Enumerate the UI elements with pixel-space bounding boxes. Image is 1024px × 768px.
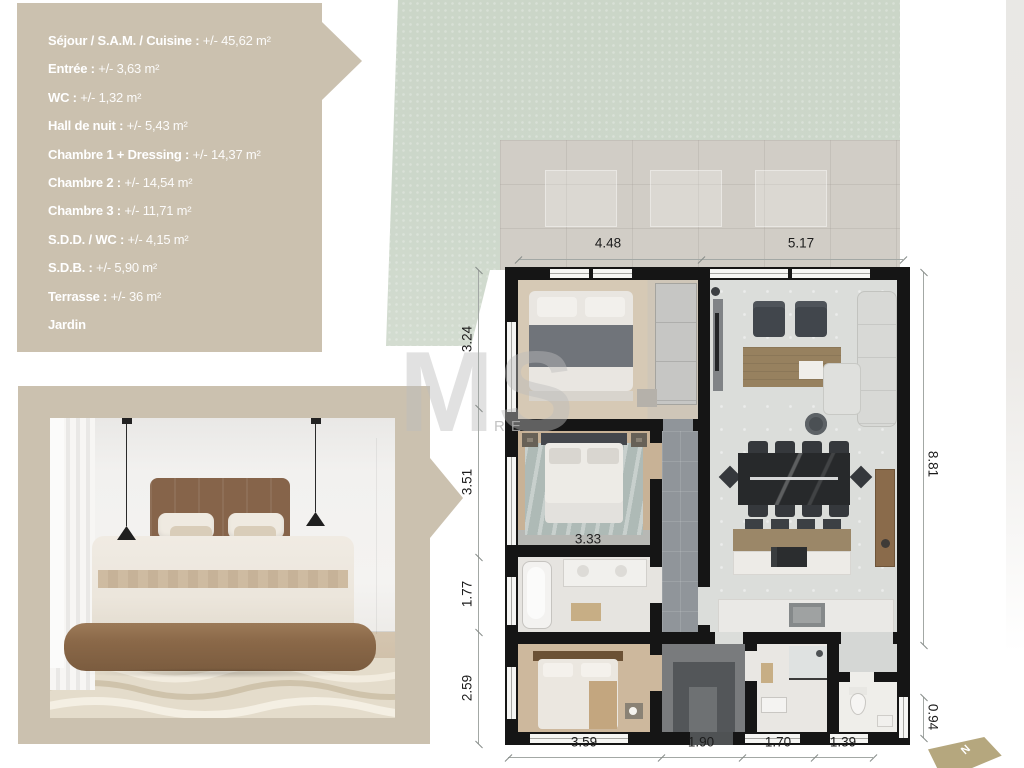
north-label: N [959,743,973,757]
dining-chair [775,441,795,453]
dimension-tick [811,754,819,762]
table-book [799,361,823,379]
floorplan-page: Séjour / S.A.M. / Cuisine : +/- 45,62 m²… [0,0,1024,768]
window-light [50,418,64,668]
nightstand [522,433,538,447]
bar-stool [745,519,763,529]
dimension-tick [475,554,483,562]
floor-plan [505,267,910,745]
terrace-area [500,140,900,270]
pendant-lamp-icon [306,512,325,526]
window [507,322,516,412]
pendant-cord [126,418,127,526]
bed-blanket [529,325,633,367]
legend-item-value: +/- 45,62 m² [203,33,271,48]
legend-box: Séjour / S.A.M. / Cuisine : +/- 45,62 m²… [17,3,322,352]
bed-leather-base [64,623,376,671]
bed-bench [529,391,633,401]
legend-item-label: Entrée : [48,61,98,76]
hall-de-nuit [662,431,698,632]
ceiling-mount [122,418,132,424]
dining-chair [829,441,849,453]
photo-pointer-icon [430,458,463,538]
door-opening [650,567,662,603]
dimension-tick [505,754,513,762]
legend-item-value: +/- 5,43 m² [127,118,188,133]
dim-label-left: 3.51 [460,469,475,495]
ceiling-mount [311,418,321,424]
legend-item-label: Jardin [48,317,86,332]
dim-label-interior: 3.33 [575,532,601,547]
door-opening [698,587,710,625]
legend-item-value: +/- 5,90 m² [96,260,157,275]
window [507,667,516,719]
vanity [563,559,647,587]
pillow [585,297,625,317]
sink-icon [761,697,787,713]
dim-label-right: 8.81 [926,451,941,477]
legend-item-value: +/- 3,63 m² [98,61,159,76]
bathtub-basin [527,567,545,619]
terrace-paver [755,170,827,227]
legend-item-value: +/- 11,71 m² [124,203,191,218]
wall-interior [698,280,710,632]
dimension-tick [739,754,747,762]
window-mullion [788,268,792,279]
bedroom-photo [50,418,395,718]
window-mullion [589,268,593,279]
legend-item-label: Chambre 3 : [48,203,124,218]
room-corner-line [376,438,377,634]
dim-label-left: 2.59 [460,675,475,701]
legend-item: Chambre 3 : +/- 11,71 m² [48,197,312,225]
lamp-icon [629,707,637,715]
hall-bas [839,644,897,672]
legend-item: Hall de nuit : +/- 5,43 m² [48,112,312,140]
pillow [587,448,619,464]
legend-item-label: Chambre 2 : [48,175,124,190]
dining-chair [748,441,768,453]
legend-item-label: WC : [48,90,80,105]
towel [761,663,773,683]
shower-head-icon [816,650,823,657]
dining-chair [802,441,822,453]
dimension-line [923,697,924,738]
dimension-tick [658,754,666,762]
bath-mat [571,603,601,621]
sink-icon [615,565,627,577]
door-opening [745,651,757,681]
dimension-tick [475,405,483,413]
sink-icon [577,565,589,577]
dining-chair [775,505,795,517]
entry-closet-notch [689,687,717,732]
side-table [805,413,827,435]
legend-item-label: Terrasse : [48,289,111,304]
wall-right [897,267,910,745]
dimension-tick [920,269,928,277]
pillow [549,448,581,464]
door-opening [663,419,693,431]
nightstand [631,433,647,447]
dimension-line [508,757,873,758]
legend-item: S.D.B. : +/- 5,90 m² [48,254,312,282]
window [530,734,628,743]
plant-icon [711,287,720,296]
legend-item-label: Hall de nuit : [48,118,127,133]
dimension-line [478,270,479,744]
legend-item: WC : +/- 1,32 m² [48,84,312,112]
window [507,457,516,545]
bed-runner [98,570,348,588]
nightstand [637,389,657,407]
pendant-lamp-icon [117,526,136,540]
legend-item-value: +/- 14,54 m² [124,175,192,190]
door-opening [650,655,662,691]
wall-interior [827,644,839,732]
dim-label-left: 1.77 [460,581,475,607]
window [830,734,868,743]
dimension-tick [920,735,928,743]
bar-stool [797,519,815,529]
wall-interior [518,545,650,557]
legend-item-value: +/- 1,32 m² [80,90,141,105]
door-opening [850,672,874,682]
window [899,697,908,738]
dimension-tick [475,741,483,749]
pillow [537,297,577,317]
armchair [753,301,785,337]
page-edge-shading [1006,0,1024,768]
dining-chair [748,505,768,517]
legend-item-value: +/- 14,37 m² [193,147,261,162]
terrace-paver [545,170,617,227]
sink-icon [877,715,893,727]
sink-icon [789,603,825,627]
legend-item: Entrée : +/- 3,63 m² [48,55,312,83]
pendant-cord [315,418,316,512]
bed-throw [589,681,617,729]
sofa-chaise [823,363,861,415]
door-opening [715,632,743,644]
terrace-paver [650,170,722,227]
legend-item-value: +/- 4,15 m² [128,232,189,247]
entry-door-recess [690,732,733,745]
dining-chair [829,505,849,517]
bed-shadow [80,668,360,678]
dimension-tick [920,642,928,650]
door-opening [650,443,662,479]
cooktop-icon [771,547,807,567]
pillow [543,663,573,677]
bar-stool [823,519,841,529]
door-opening [841,632,893,644]
pillow [581,663,611,677]
dimension-tick [870,754,878,762]
legend-item-value: +/- 36 m² [111,289,162,304]
north-arrow-icon: N [928,737,1004,768]
dimension-tick [900,256,908,264]
wardrobe [655,283,697,405]
window [745,734,800,743]
legend-item-label: Chambre 1 + Dressing : [48,147,193,162]
tall-cabinet [875,469,895,567]
legend-item: Jardin [48,311,312,339]
legend-item: Chambre 1 + Dressing : +/- 14,37 m² [48,141,312,169]
armchair [795,301,827,337]
dimension-line [923,272,924,645]
legend-item: Séjour / S.A.M. / Cuisine : +/- 45,62 m² [48,27,312,55]
appliance-icon [881,539,890,548]
window [507,577,516,625]
legend-pointer-icon [322,22,362,100]
tv-icon [715,313,719,371]
dimension-tick [920,694,928,702]
table-runner [750,477,838,480]
legend-item: S.D.D. / WC : +/- 4,15 m² [48,226,312,254]
legend-list: Séjour / S.A.M. / Cuisine : +/- 45,62 m²… [48,27,312,339]
sofa [857,291,897,427]
dim-label-right: 0.94 [926,704,941,730]
legend-item: Chambre 2 : +/- 14,54 m² [48,169,312,197]
legend-item: Terrasse : +/- 36 m² [48,283,312,311]
bar-stool [771,519,789,529]
legend-item-label: S.D.D. / WC : [48,232,128,247]
legend-item-label: Séjour / S.A.M. / Cuisine : [48,33,203,48]
legend-item-label: S.D.B. : [48,260,96,275]
dining-chair [802,505,822,517]
dimension-tick [475,629,483,637]
